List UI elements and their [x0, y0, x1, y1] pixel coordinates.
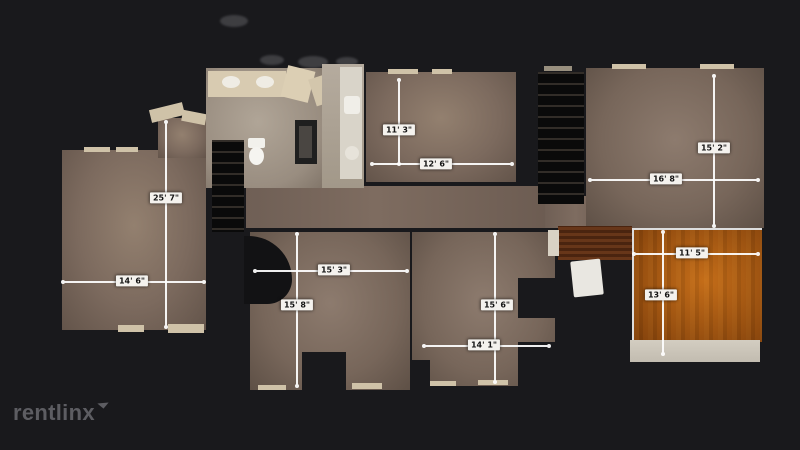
- window-sill: [352, 383, 382, 389]
- wall-notch: [412, 360, 430, 386]
- window-sill: [700, 64, 734, 69]
- arrow-up-right-icon: [97, 397, 108, 408]
- rentlinx-logo: rentlinx: [13, 402, 95, 424]
- dimension-label-left-room-height: 25' 7": [150, 192, 182, 203]
- hallway-floor: [246, 186, 568, 228]
- dimension-label-top-middle-width: 12' 6": [420, 158, 452, 169]
- wall-notch: [518, 342, 555, 386]
- door-leaf: [548, 230, 559, 256]
- dimension-label-bottom-left-height: 15' 8": [281, 299, 313, 310]
- room-left-floor: [62, 150, 206, 330]
- kitchen-sink: [344, 96, 360, 114]
- vanity-counter: [208, 71, 286, 97]
- dimension-label-top-right-height: 15' 2": [698, 142, 730, 153]
- dimension-label-left-room-width: 14' 6": [116, 275, 148, 286]
- appliance: [570, 259, 604, 298]
- window-sill: [258, 385, 286, 390]
- toilet-bowl: [249, 147, 264, 165]
- cooktop: [345, 146, 359, 160]
- dimension-line: [165, 122, 167, 327]
- stairwell: [212, 140, 244, 232]
- wood-room-light-strip: [630, 340, 760, 362]
- wall-notch: [518, 278, 555, 318]
- window-sill: [430, 381, 456, 386]
- sink-basin: [222, 76, 240, 88]
- window-sill: [84, 147, 110, 152]
- window-sill: [432, 69, 452, 74]
- dimension-label-bottom-middle-width: 14' 1": [468, 339, 500, 350]
- dimension-label-wood-room-width: 11' 5": [676, 247, 708, 258]
- dimension-label-wood-room-height: 13' 6": [645, 289, 677, 300]
- window-sill: [388, 69, 418, 74]
- window-sill: [168, 324, 204, 333]
- rentlinx-logo-text: rentlinx: [13, 400, 95, 425]
- dimension-label-top-right-width: 16' 8": [650, 173, 682, 184]
- window-sill: [612, 64, 646, 69]
- stairwell: [538, 72, 584, 204]
- kitchen-counter: [340, 67, 362, 179]
- wall-notch: [302, 352, 346, 390]
- window-sill: [118, 325, 144, 332]
- ceiling-artifact: [220, 15, 248, 27]
- room-wood-floor: [632, 228, 762, 342]
- floorplan-image: 25' 7" 14' 6" 11' 3" 12' 6" 15' 2" 16' 8…: [0, 0, 800, 450]
- dimension-label-top-middle-height: 11' 3": [383, 124, 415, 135]
- window-sill: [544, 66, 572, 71]
- room-top-right-floor: [586, 68, 764, 228]
- dimension-label-bottom-left-width: 15' 3": [318, 264, 350, 275]
- window-sill: [116, 147, 138, 152]
- dimension-label-bottom-middle-height: 15' 6": [481, 299, 513, 310]
- wood-landing: [558, 226, 632, 260]
- ceiling-artifact: [260, 55, 284, 65]
- sink-basin: [256, 76, 274, 88]
- dimension-line: [398, 80, 400, 164]
- bathtub-interior: [299, 126, 312, 158]
